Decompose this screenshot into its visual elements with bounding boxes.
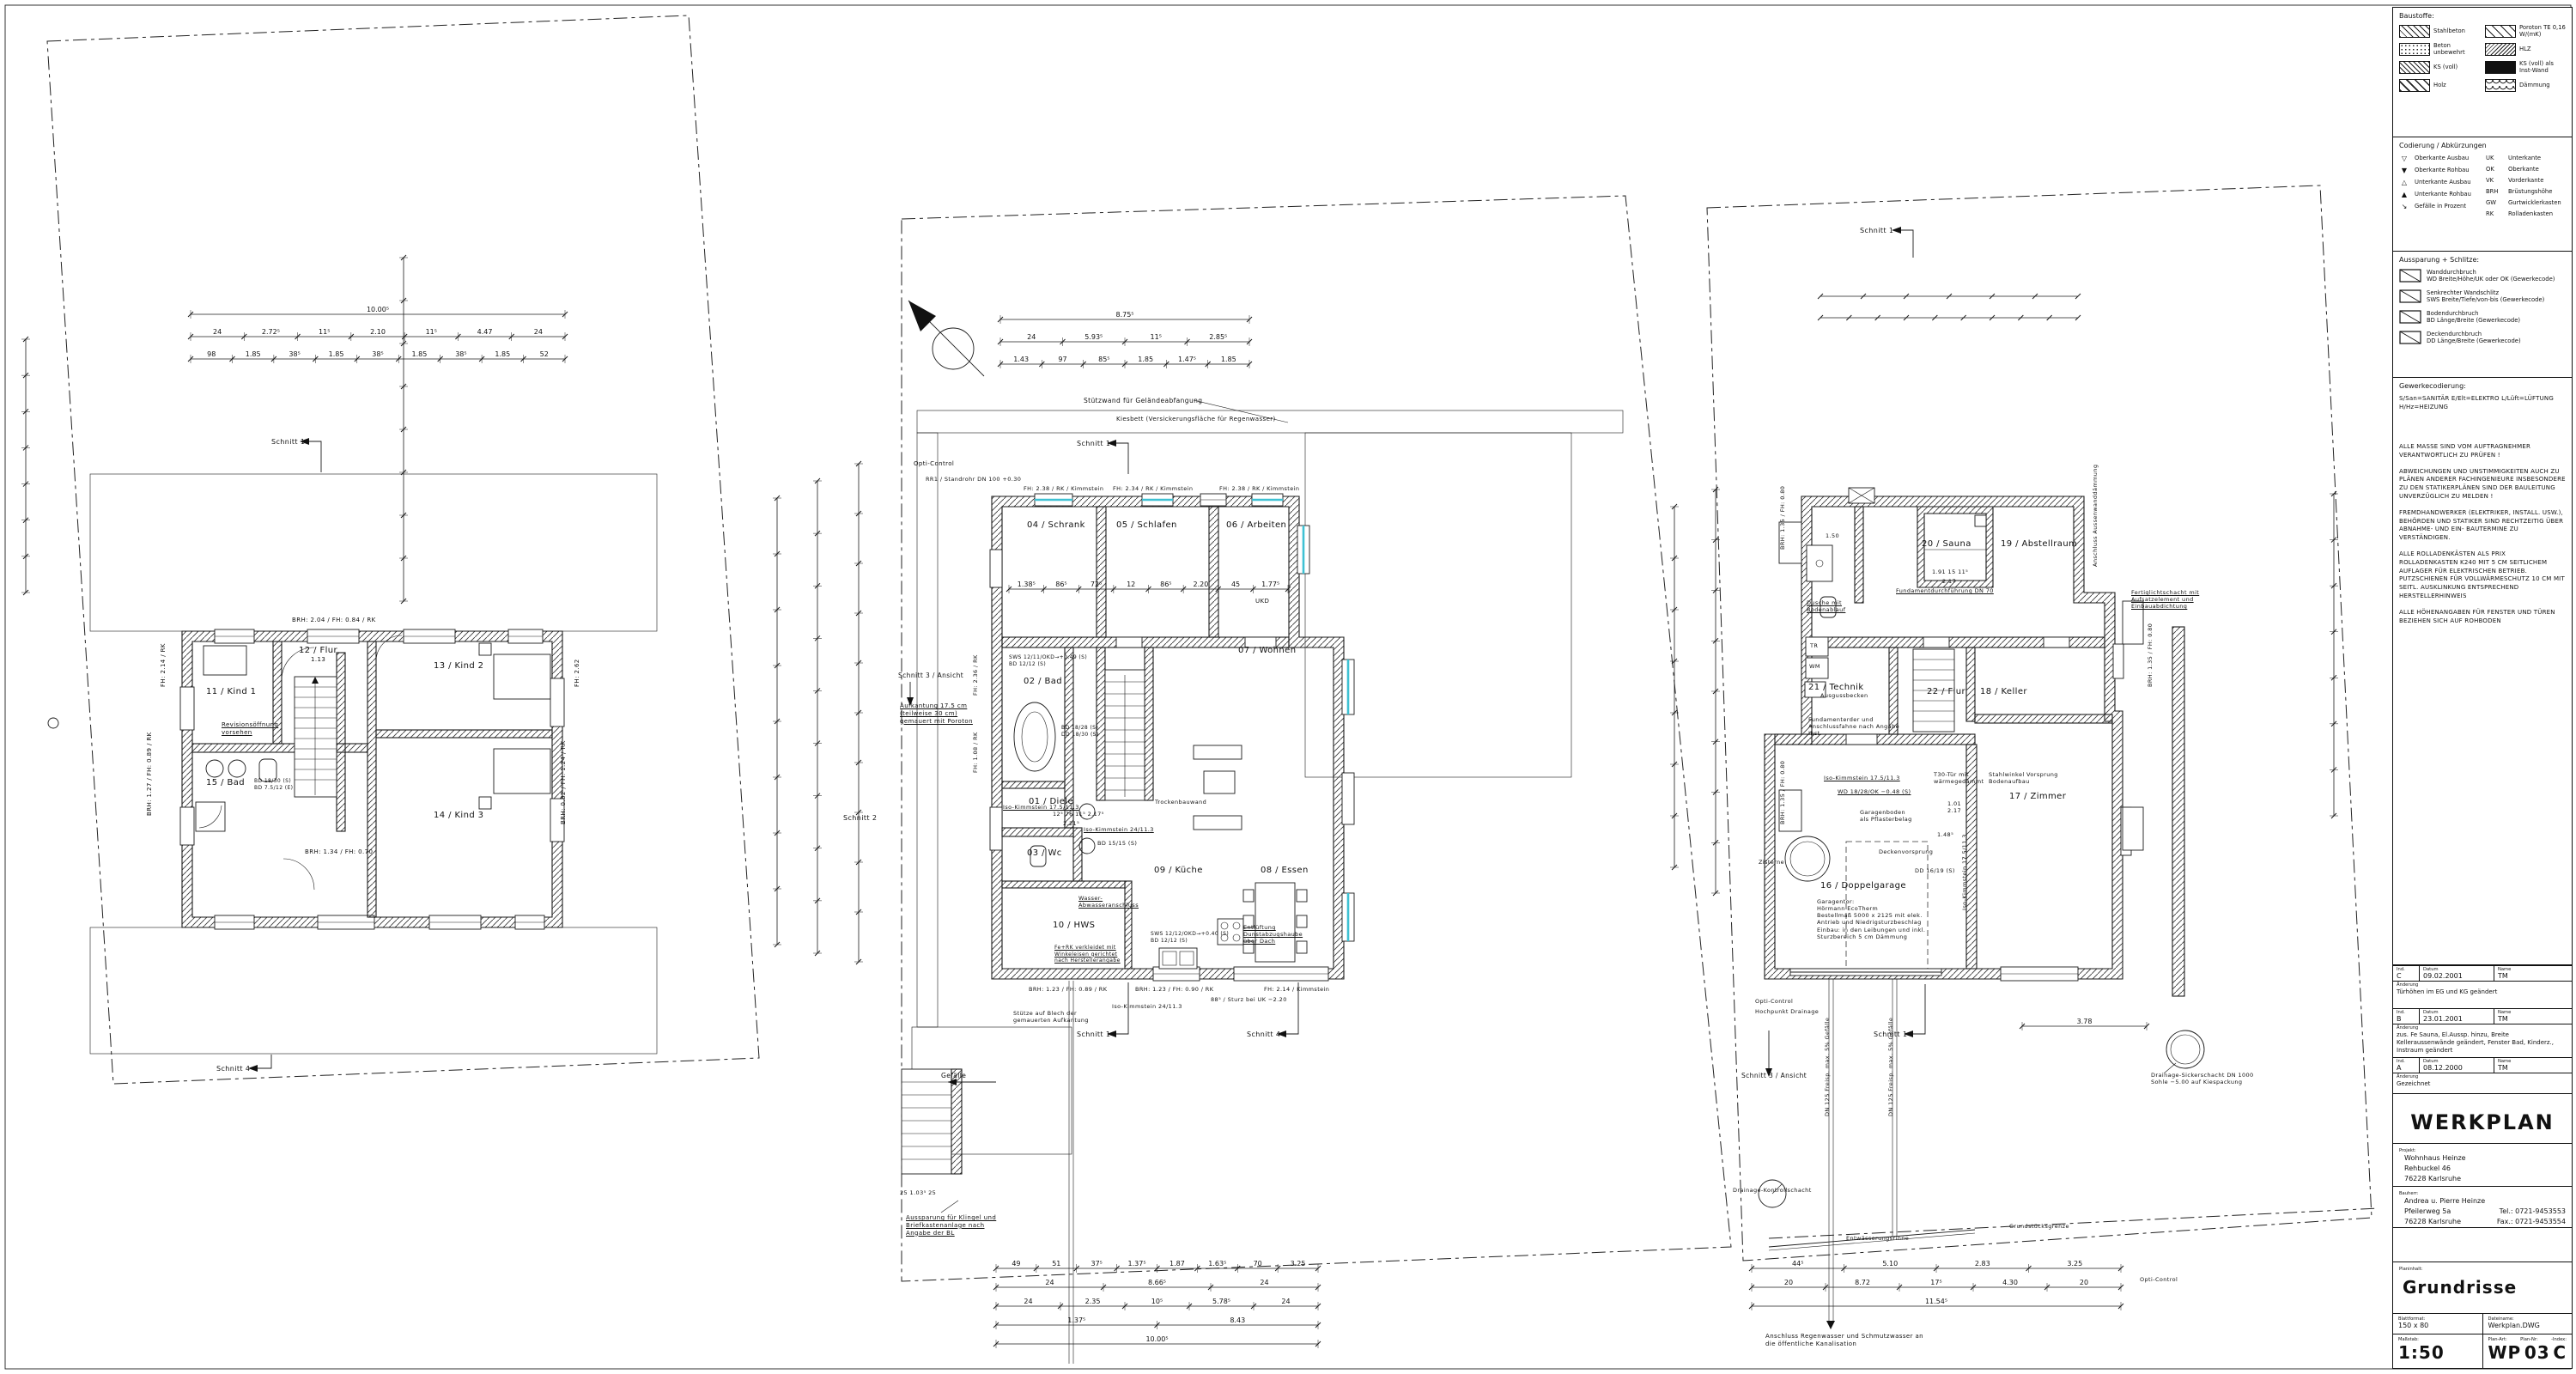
format-row: Blattformat: 150 x 80 Dateiname: Werkpla… [2393, 1313, 2572, 1334]
abbr-value: Brüstungshöhe [2508, 188, 2552, 195]
annotation: WM [1809, 663, 1820, 670]
note-paragraph: ALLE HÖHENANGABEN FÜR FENSTER UND TÜREN … [2399, 609, 2566, 626]
legend-item: Stahlbeton [2399, 25, 2480, 38]
revision-text: Gezeichnet [2397, 1080, 2430, 1087]
annotation: 04 / Schrank [1027, 520, 1085, 532]
annotation: Schnitt 3 / Ansicht [898, 672, 963, 679]
annotation: TR [1810, 642, 1818, 649]
annotation: Schnitt 2 [843, 814, 877, 823]
annotation: BD 18/30 (S) BD 7.5/12 (E) [254, 778, 293, 791]
annotation: FH: 2.34 / RK / Kimmstein [1113, 485, 1193, 492]
annotation: 2.21⁵ [1063, 820, 1079, 827]
annotation: BRH: 1.35 / FH: 0.80 [1779, 761, 1786, 824]
annotation: FH: 2.14 / Kimmstein [1264, 986, 1329, 993]
code-row: ▼ Oberkante Rohbau [2399, 167, 2479, 174]
level-marker-icon: ▼ [2399, 167, 2409, 174]
legend-item: Dämmung [2485, 79, 2566, 92]
opening-row: Bodendurchbruch BD Länge/Breite (Gewerke… [2399, 310, 2566, 325]
abbr-value: Gurtwicklerkasten [2508, 199, 2561, 206]
opening-name: Bodendurchbruch [2427, 310, 2520, 317]
annotation: Schnitt 1 [1860, 227, 1893, 235]
annotation: T30-Tür mit wärmegedämmt [1934, 771, 1984, 785]
revision-entry: Ind.C Datum09.02.2001 NameTM ÄnderungTür… [2393, 965, 2572, 1008]
abbr-row: BRH Brüstungshöhe [2486, 188, 2566, 195]
opening-row: Senkrechter Wandschlitz SWS Breite/Tiefe… [2399, 289, 2566, 304]
annotation: Grundstücksgrenze [2009, 1223, 2069, 1230]
material-swatch [2399, 43, 2430, 56]
legend-item-label: HLZ [2519, 46, 2531, 52]
project-box: Projekt: Wohnhaus Heinze Rehbuckel 46 76… [2393, 1143, 2572, 1186]
legend-item-label: KS (voll) als Inst-Wand [2519, 61, 2566, 74]
revision-table: Ind.C Datum09.02.2001 NameTM ÄnderungTür… [2393, 964, 2572, 1093]
annotation: Entlüftung Dunstabzugshaube über Dach [1243, 924, 1303, 945]
openings-title: Aussparung + Schlitze: [2399, 256, 2566, 264]
annotations-layer: Schnitt 1BRH: 2.04 / FH: 0.84 / RK12 / F… [0, 0, 2576, 1374]
annotation: WD 18/28/OK −0.48 (S) [1838, 788, 1911, 795]
annotation: Iso-Kimmstein 17.5/11.3 [1824, 775, 1900, 781]
abbr-key: UK [2486, 155, 2503, 161]
abbr-key: VK [2486, 177, 2503, 184]
annotation: Schnitt 3 / Ansicht [1741, 1072, 1807, 1079]
annotation: BD 15/15 (S) [1097, 840, 1137, 847]
annotation: 13 / Kind 2 [434, 661, 483, 672]
annotation: Schnitt 1 [1077, 440, 1110, 448]
annotation: FH: 2.38 / RK / Kimmstein [1219, 485, 1299, 492]
annotation: 1.13 [311, 656, 325, 664]
level-marker-icon: △ [2399, 179, 2409, 186]
material-swatch [2485, 61, 2516, 74]
annotation: FH: 2.36 / RK [972, 654, 979, 696]
annotation: Iso-Kimmstein 17.5/11.3 [1961, 834, 1968, 910]
annotation: 03 / Wc [1027, 848, 1062, 860]
revision-index: B [2397, 1015, 2402, 1023]
legend-item: Beton unbewehrt [2399, 43, 2480, 56]
legend-openings: Aussparung + Schlitze: Wanddurchbruch WD… [2393, 251, 2572, 377]
annotation: Trockenbauwand [1155, 799, 1206, 806]
annotation: 18 / Keller [1980, 687, 2027, 698]
annotation: RR1 / Standrohr DN 100 +0.30 [926, 476, 1021, 483]
annotation: 1.48⁵ [1937, 831, 1953, 838]
annotation: Ausgussbecken [1820, 692, 1868, 699]
codes-title: Codierung / Abkürzungen [2399, 142, 2566, 149]
annotation: Gefälle [941, 1072, 966, 1079]
abbr-value: Unterkante [2508, 155, 2541, 161]
material-swatch [2399, 25, 2430, 38]
opening-code: WD Breite/Höhe/UK oder OK (Gewerkecode) [2427, 276, 2555, 283]
opening-name: Wanddurchbruch [2427, 269, 2555, 276]
opening-code: BD Länge/Breite (Gewerkecode) [2427, 317, 2520, 324]
plan-type: WERKPLAN [2399, 1098, 2566, 1143]
abbr-row: UK Unterkante [2486, 155, 2566, 161]
annotation: Drainage-Kontrollschacht [1733, 1187, 1812, 1194]
sheet-format: 150 x 80 [2398, 1322, 2428, 1329]
codes-symbols: ▽ Oberkante Ausbau ▼ Oberkante Rohbau △ … [2399, 155, 2479, 222]
annotation: Schnitt 4 [1247, 1030, 1280, 1039]
content-box: Planinhalt: Grundrisse [2393, 1262, 2572, 1313]
annotation: 12 / Flur [299, 646, 337, 657]
drawing-sheet: .s{fill:none;stroke:#1b1b1b;stroke-width… [0, 0, 2576, 1374]
material-swatch [2399, 79, 2430, 92]
revision-author: TM [2498, 1015, 2508, 1023]
annotation: BRH: 1.35 / FH: 0.80 [1779, 486, 1786, 550]
title-block: Baustoffe: Stahlbeton Poroton TE 0,16 W/… [2392, 7, 2573, 1369]
annotation: Hochpunkt Drainage [1755, 1008, 1819, 1015]
scale-row: Maßstab: 1:50 Plan-Art: Plan-Nr: -Index:… [2393, 1334, 2572, 1368]
annotation: 12⁵ 76 11⁵ 2.17⁵ [1053, 811, 1104, 818]
level-marker-icon: ▲ [2399, 191, 2409, 198]
code-row: ▽ Oberkante Ausbau [2399, 155, 2479, 162]
annotation: Iso-Kimmstein 17.5/11.3 [1003, 804, 1079, 811]
annotation: Wasser- Abwasseranschluss [1078, 895, 1139, 909]
annotation: Stahlwinkel Vorsprung Bodenaufbau [1989, 771, 2058, 785]
abbr-value: Vorderkante [2508, 177, 2543, 184]
annotation: Stützwand für Geländeabfangung [1084, 397, 1202, 404]
legend-codes: Codierung / Abkürzungen ▽ Oberkante Ausb… [2393, 137, 2572, 251]
abbr-row: RK Rolladenkasten [2486, 210, 2566, 217]
revision-index: A [2397, 1064, 2401, 1072]
opening-code: SWS Breite/Tiefe/von-bis (Gewerkecode) [2427, 296, 2544, 303]
annotation: Opti-Control [1755, 998, 1793, 1005]
legend-item-label: Beton unbewehrt [2433, 43, 2480, 56]
annotation: BRH: 1.23 / FH: 0.89 / RK [1029, 986, 1107, 993]
plan-content-title: Grundrisse [2399, 1272, 2566, 1298]
trade-codes-lines: S/San=SANITÄR E/Elt=ELEKTRO L/Lüft=LÜFTU… [2399, 395, 2566, 412]
annotation: Schnitt 1 [271, 438, 305, 447]
code-label: Gefälle in Prozent [2415, 203, 2466, 210]
opening-row: Wanddurchbruch WD Breite/Höhe/UK oder OK… [2399, 269, 2566, 283]
annotation: Kiesbett (Versickerungsfläche für Regenw… [1116, 416, 1276, 423]
annotation: BRH: 0.82 / FH: 1.24 / RK [560, 740, 568, 824]
annotation: 11 / Kind 1 [206, 687, 256, 698]
annotation: DD 16/19 (S) [1915, 867, 1955, 874]
annotation: 09 / Küche [1154, 866, 1203, 877]
annotation: 14 / Kind 3 [434, 811, 483, 822]
revision-text: zus. Fe Sauna, El.Aussp. hinzu, Breite K… [2397, 1031, 2554, 1054]
annotation: Schnitt 1 [1077, 1030, 1110, 1039]
abbr-key: RK [2486, 210, 2503, 217]
plan-number: 03 [2524, 1342, 2550, 1363]
annotation: Entwässerungsrinne [1846, 1235, 1909, 1242]
codes-abbr: UK Unterkante OK Oberkante VK Vorderkant… [2486, 155, 2566, 222]
annotation: Schnitt 1 [1874, 1030, 1907, 1039]
annotation: 02 / Bad [1024, 677, 1062, 688]
opening-symbol-icon [2399, 269, 2421, 283]
client-tel: Tel.: 0721-9453553 [2500, 1207, 2566, 1215]
annotation: Opti-Control [914, 460, 954, 468]
legend-item-label: Holz [2433, 82, 2446, 88]
annotation: Garagentor: Hörmann EcoTherm Bestellmaß … [1817, 898, 1925, 940]
revision-entry: Ind.B Datum23.01.2001 NameTM Änderungzus… [2393, 1008, 2572, 1057]
abbr-value: Rolladenkasten [2508, 210, 2553, 217]
legend-item: KS (voll) [2399, 61, 2480, 74]
abbr-key: GW [2486, 199, 2503, 206]
note-paragraph: ABWEICHUNGEN UND UNSTIMMIGKEITEN AUCH ZU… [2399, 468, 2566, 502]
annotation: 05 / Schlafen [1116, 520, 1177, 532]
opening-name: Senkrechter Wandschlitz [2427, 289, 2544, 296]
annotation: BRH: 1.34 / FH: 0.70 [305, 848, 373, 856]
annotation: BRH: 2.04 / FH: 0.84 / RK [292, 617, 376, 624]
annotation: Stütze auf Blech der gemauerten Aufkantu… [1013, 1010, 1089, 1024]
legend-item-label: Poroton TE 0,16 W/(mK) [2519, 25, 2566, 38]
material-swatch [2485, 25, 2516, 38]
code-label: Unterkante Ausbau [2415, 179, 2471, 185]
legend-materials: Baustoffe: Stahlbeton Poroton TE 0,16 W/… [2393, 8, 2572, 137]
annotation: 25 1.03⁵ 25 [900, 1189, 936, 1196]
trade-codes-title: Gewerkecodierung: [2399, 382, 2566, 390]
annotation: 22 / Flur [1927, 687, 1965, 698]
level-marker-icon: ▽ [2399, 155, 2409, 162]
general-notes: ALLE MASSE SIND VOM AUFTRAGNEHMER VERANT… [2393, 439, 2572, 964]
annotation: 07 / Wohnen [1238, 646, 1296, 657]
annotation: DN 125 Freisp. max. 5% Gefälle [1824, 1018, 1831, 1116]
annotation: 17 / Zimmer [2009, 792, 2066, 803]
level-marker-icon: ↘ [2399, 203, 2409, 210]
legend-item: Poroton TE 0,16 W/(mK) [2485, 25, 2566, 38]
material-swatch [2399, 61, 2430, 74]
annotation: 08 / Essen [1261, 866, 1309, 877]
annotation: Zisterne [1759, 859, 1784, 866]
annotation: BRH: 1.27 / FH: 0.89 / RK [146, 732, 154, 816]
code-label: Oberkante Rohbau [2415, 167, 2470, 173]
annotation: 16 / Doppelgarage [1820, 881, 1906, 892]
material-swatch [2485, 43, 2516, 56]
annotation: 15 / Bad [206, 778, 245, 789]
trade-codes: Gewerkecodierung: S/San=SANITÄR E/Elt=EL… [2393, 377, 2572, 439]
revision-date: 09.02.2001 [2423, 972, 2463, 980]
annotation: UKD [1255, 598, 1269, 605]
annotation: 1.01 2.17 [1947, 800, 1961, 814]
annotation: Iso-Kimmstein 24/11.3 [1112, 1003, 1182, 1010]
code-label: Oberkante Ausbau [2415, 155, 2469, 161]
abbr-key: BRH [2486, 188, 2503, 195]
client-box: Bauherr: Andrea u. Pierre Heinze Pfeiler… [2393, 1186, 2572, 1227]
annotation: Aussparung für Klingel und Briefkastenan… [906, 1214, 996, 1237]
code-row: △ Unterkante Ausbau [2399, 179, 2479, 186]
annotation: Anschluss Aussenwanddämmung [2092, 465, 2099, 567]
legend-item: Holz [2399, 79, 2480, 92]
code-label: Unterkante Rohbau [2415, 191, 2471, 198]
note-paragraph: FREMDHANDWERKER (ELEKTRIKER, INSTALL. US… [2399, 509, 2566, 543]
annotation: FH: 1.08 / RK [972, 732, 979, 773]
annotation: Revisionsöffnung vorsehen [222, 721, 282, 737]
legend-item: HLZ [2485, 43, 2566, 56]
annotation: 88⁵ / Sturz bei UK −2.20 [1211, 996, 1287, 1003]
opening-name: Deckendurchbruch [2427, 331, 2521, 337]
annotation: BRH: 1.35 / FH: 0.80 [2147, 623, 2154, 687]
opening-row: Deckendurchbruch DD Länge/Breite (Gewerk… [2399, 331, 2566, 345]
annotation: Fundamentdurchführung DN 70 [1896, 587, 1994, 594]
annotation: SWS 12/12/OKD→+0.40 (S) BD 12/12 (S) [1151, 931, 1229, 944]
revision-date: 23.01.2001 [2423, 1015, 2463, 1023]
annotation: Fe+RK verkleidet mit Winkeleisen gericht… [1054, 945, 1121, 964]
plan-index: C [2553, 1342, 2567, 1363]
annotation: 20 / Sauna [1922, 539, 1971, 550]
annotation: Iso-Kimmstein 24/11.3 [1084, 826, 1154, 833]
legend-item-label: Stahlbeton [2433, 28, 2465, 34]
note-paragraph: ALLE ROLLADENKÄSTEN ALS PRIX ROLLADENKAS… [2399, 550, 2566, 601]
revision-date: 08.12.2000 [2423, 1064, 2463, 1072]
annotation: Garagenboden als Pflasterbelag [1860, 809, 1912, 823]
openings-list: Wanddurchbruch WD Breite/Höhe/UK oder OK… [2399, 269, 2566, 345]
legend-item: KS (voll) als Inst-Wand [2485, 61, 2566, 74]
annotation: 1.91 15 11⁵ [1932, 568, 1968, 575]
code-row: ▲ Unterkante Rohbau [2399, 191, 2479, 198]
annotation: 10 / HWS [1053, 921, 1095, 932]
annotation: 06 / Arbeiten [1226, 520, 1286, 532]
legend-grid: Stahlbeton Poroton TE 0,16 W/(mK) Beton … [2399, 25, 2566, 92]
client-address: Andrea u. Pierre Heinze Pfeilerweg 5a 76… [2399, 1196, 2492, 1227]
legend-title: Baustoffe: [2399, 12, 2566, 20]
annotation: Dusche mit Bodenablauf [1807, 599, 1845, 613]
revision-text: Türhöhen im EG und KG geändert [2397, 988, 2497, 995]
opening-code: DD Länge/Breite (Gewerkecode) [2427, 337, 2521, 344]
client-fax: Fax.: 0721-9453554 [2497, 1218, 2566, 1225]
plan-type-box: WERKPLAN [2393, 1093, 2572, 1143]
annotation: Drainage-Sickerschacht DN 1000 Sohle −5.… [2151, 1072, 2254, 1085]
revision-rows: Ind.C Datum09.02.2001 NameTM ÄnderungTür… [2393, 965, 2572, 1100]
opening-symbol-icon [2399, 289, 2421, 303]
opening-symbol-icon [2399, 331, 2421, 344]
annotation: FH: 2.14 / RK [160, 643, 167, 687]
annotation: Fertiglichtschacht mit Aufsatzelement un… [2131, 589, 2199, 610]
revision-author: TM [2498, 1064, 2508, 1072]
material-swatch [2485, 79, 2516, 92]
annotation: Aufkantung 17.5 cm (teilweise 30 cm) gem… [900, 702, 973, 725]
annotation: Anschluss Regenwasser und Schmutzwasser … [1765, 1333, 1923, 1348]
annotation: Schnitt 4 [216, 1065, 250, 1073]
annotation: 2.17 [1942, 578, 1956, 585]
annotation: Opti-Control [2140, 1276, 2178, 1283]
annotation: BRH: 1.23 / FH: 0.90 / RK [1135, 986, 1213, 993]
annotation: SWS 12/11/OKD→+0.49 (S) BD 12/12 (S) [1009, 654, 1087, 667]
annotation: 1.50 [1826, 532, 1839, 539]
abbr-value: Oberkante [2508, 166, 2539, 173]
abbr-row: VK Vorderkante [2486, 177, 2566, 184]
abbr-row: OK Oberkante [2486, 166, 2566, 173]
file-name: Werkplan.DWG [2488, 1322, 2540, 1329]
plan-kind: WP [2488, 1342, 2522, 1363]
revision-index: C [2397, 972, 2402, 980]
legend-item-label: Dämmung [2519, 82, 2550, 88]
abbr-key: OK [2486, 166, 2503, 173]
annotation: BD 18/28 (S) DD 18/30 (S) [1061, 725, 1099, 738]
notes-list: ALLE MASSE SIND VOM AUFTRAGNEHMER VERANT… [2399, 443, 2566, 625]
opening-symbol-icon [2399, 310, 2421, 324]
annotation: Fundamenterder und Anschlussfahne nach A… [1808, 716, 1899, 737]
project-address: Wohnhaus Heinze Rehbuckel 46 76228 Karls… [2399, 1153, 2566, 1184]
scale-value: 1:50 [2398, 1342, 2477, 1363]
note-paragraph: ALLE MASSE SIND VOM AUFTRAGNEHMER VERANT… [2399, 443, 2566, 460]
code-row: ↘ Gefälle in Prozent [2399, 203, 2479, 210]
annotation: 19 / Abstellraum [2001, 539, 2077, 550]
spare-box [2393, 1227, 2572, 1262]
legend-item-label: KS (voll) [2433, 64, 2458, 70]
abbr-row: GW Gurtwicklerkasten [2486, 199, 2566, 206]
annotation: FH: 2.62 [574, 659, 581, 687]
revision-author: TM [2498, 972, 2508, 980]
annotation: FH: 2.38 / RK / Kimmstein [1024, 485, 1103, 492]
annotation: Deckenvorsprung [1879, 848, 1933, 855]
